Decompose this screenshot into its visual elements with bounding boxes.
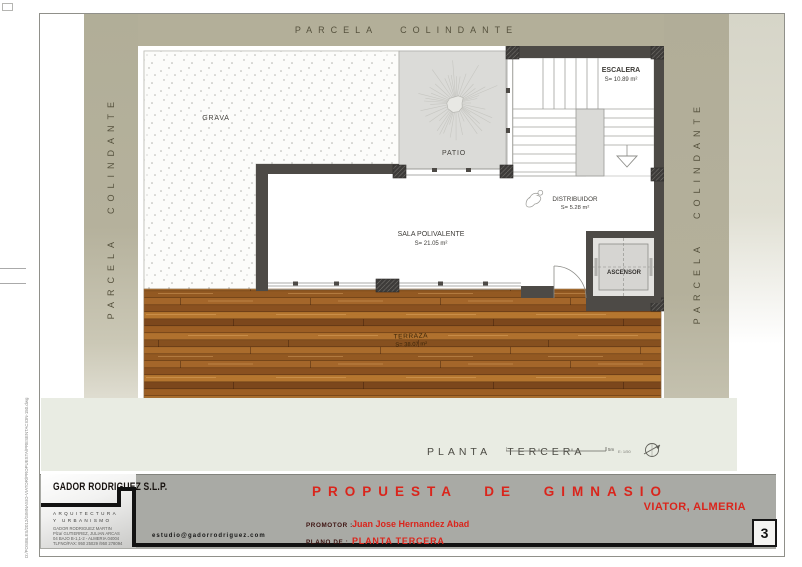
scale-bar-and-compass: 5m E: 1/50 — [506, 440, 676, 462]
floor-plan: GRAVA TERRAZA S= 38.07 m² PATIO — [138, 46, 664, 398]
escalera-room: ESCALERA S= 10.89 m² — [513, 58, 654, 176]
sheet-number: 3 — [752, 519, 777, 547]
plano-label: PLANO DE : — [306, 539, 348, 546]
paper-sheet: PARCELA COLINDANTE PARCELA COLINDANTE PA… — [39, 13, 785, 557]
patio-label: PATIO — [442, 150, 466, 157]
sala-area-labels: SALA POLIVALENTE S= 21.05 m² — [398, 231, 465, 247]
parcel-label-right: PARCELA COLINDANTE — [692, 101, 702, 324]
fold-mark — [0, 268, 26, 269]
patio-area: PATIO — [399, 51, 506, 169]
terraza-deck: TERRAZA S= 38.07 m² — [144, 289, 661, 398]
escalera-label: ESCALERA — [602, 67, 641, 74]
terraza-label: TERRAZA — [394, 332, 429, 340]
sala-area: S= 21.05 m² — [415, 241, 448, 247]
distribuidor-area: S= 5.28 m² — [561, 205, 590, 211]
terraza-area: S= 38.07 m² — [395, 341, 427, 348]
parcel-label-left: PARCELA COLINDANTE — [106, 96, 116, 319]
parcel-band-right: PARCELA COLINDANTE — [664, 14, 729, 411]
parcel-band-top: PARCELA COLINDANTE — [84, 14, 729, 46]
scale-ratio-label: E: 1/50 — [618, 449, 631, 454]
ascensor: ASCENSOR — [586, 231, 661, 303]
title-block: GADOR RODRIGUEZ S.L.P. ARQUITECTURA Y UR… — [40, 474, 776, 549]
promotor-label: PROMOTOR : — [306, 522, 353, 529]
escalera-area: S= 10.89 m² — [605, 77, 638, 83]
scale-bar — [506, 447, 606, 451]
scale-units-label: 5m — [608, 447, 615, 452]
site-ground: PLANTA TERCERA 5m E: 1/50 — [41, 398, 737, 471]
parcel-band-left: PARCELA COLINDANTE — [84, 14, 138, 401]
sala-label: SALA POLIVALENTE — [398, 231, 465, 238]
stair-core — [576, 109, 604, 176]
person-figure — [523, 190, 546, 208]
ascensor-label: ASCENSOR — [607, 270, 642, 276]
file-path-note: D:/POSIBLES/2012/GIMNASIO-VIATOR/PROPUES… — [24, 436, 29, 558]
drawing-sheet-page: D:/POSIBLES/2012/GIMNASIO-VIATOR/PROPUES… — [0, 0, 802, 567]
distribuidor-area: DISTRIBUIDOR S= 5.28 m² — [523, 190, 598, 211]
parcel-strip-right — [729, 14, 784, 344]
registration-mark — [2, 3, 13, 11]
grava-label: GRAVA — [202, 115, 229, 122]
project-title: PROPUESTA DE GIMNASIO — [240, 484, 740, 499]
promotor-value: Juan Jose Hernandez Abad — [352, 519, 469, 529]
firm-email: estudio@gadorrodriguez.com — [152, 533, 266, 539]
parcel-label-top: PARCELA COLINDANTE — [295, 25, 518, 35]
north-compass-icon — [644, 444, 660, 457]
project-location: VIATOR, ALMERIA — [470, 501, 746, 513]
plano-value: PLANTA TERCERA — [352, 536, 445, 546]
distribuidor-label: DISTRIBUIDOR — [552, 196, 598, 203]
fold-mark — [0, 283, 26, 284]
